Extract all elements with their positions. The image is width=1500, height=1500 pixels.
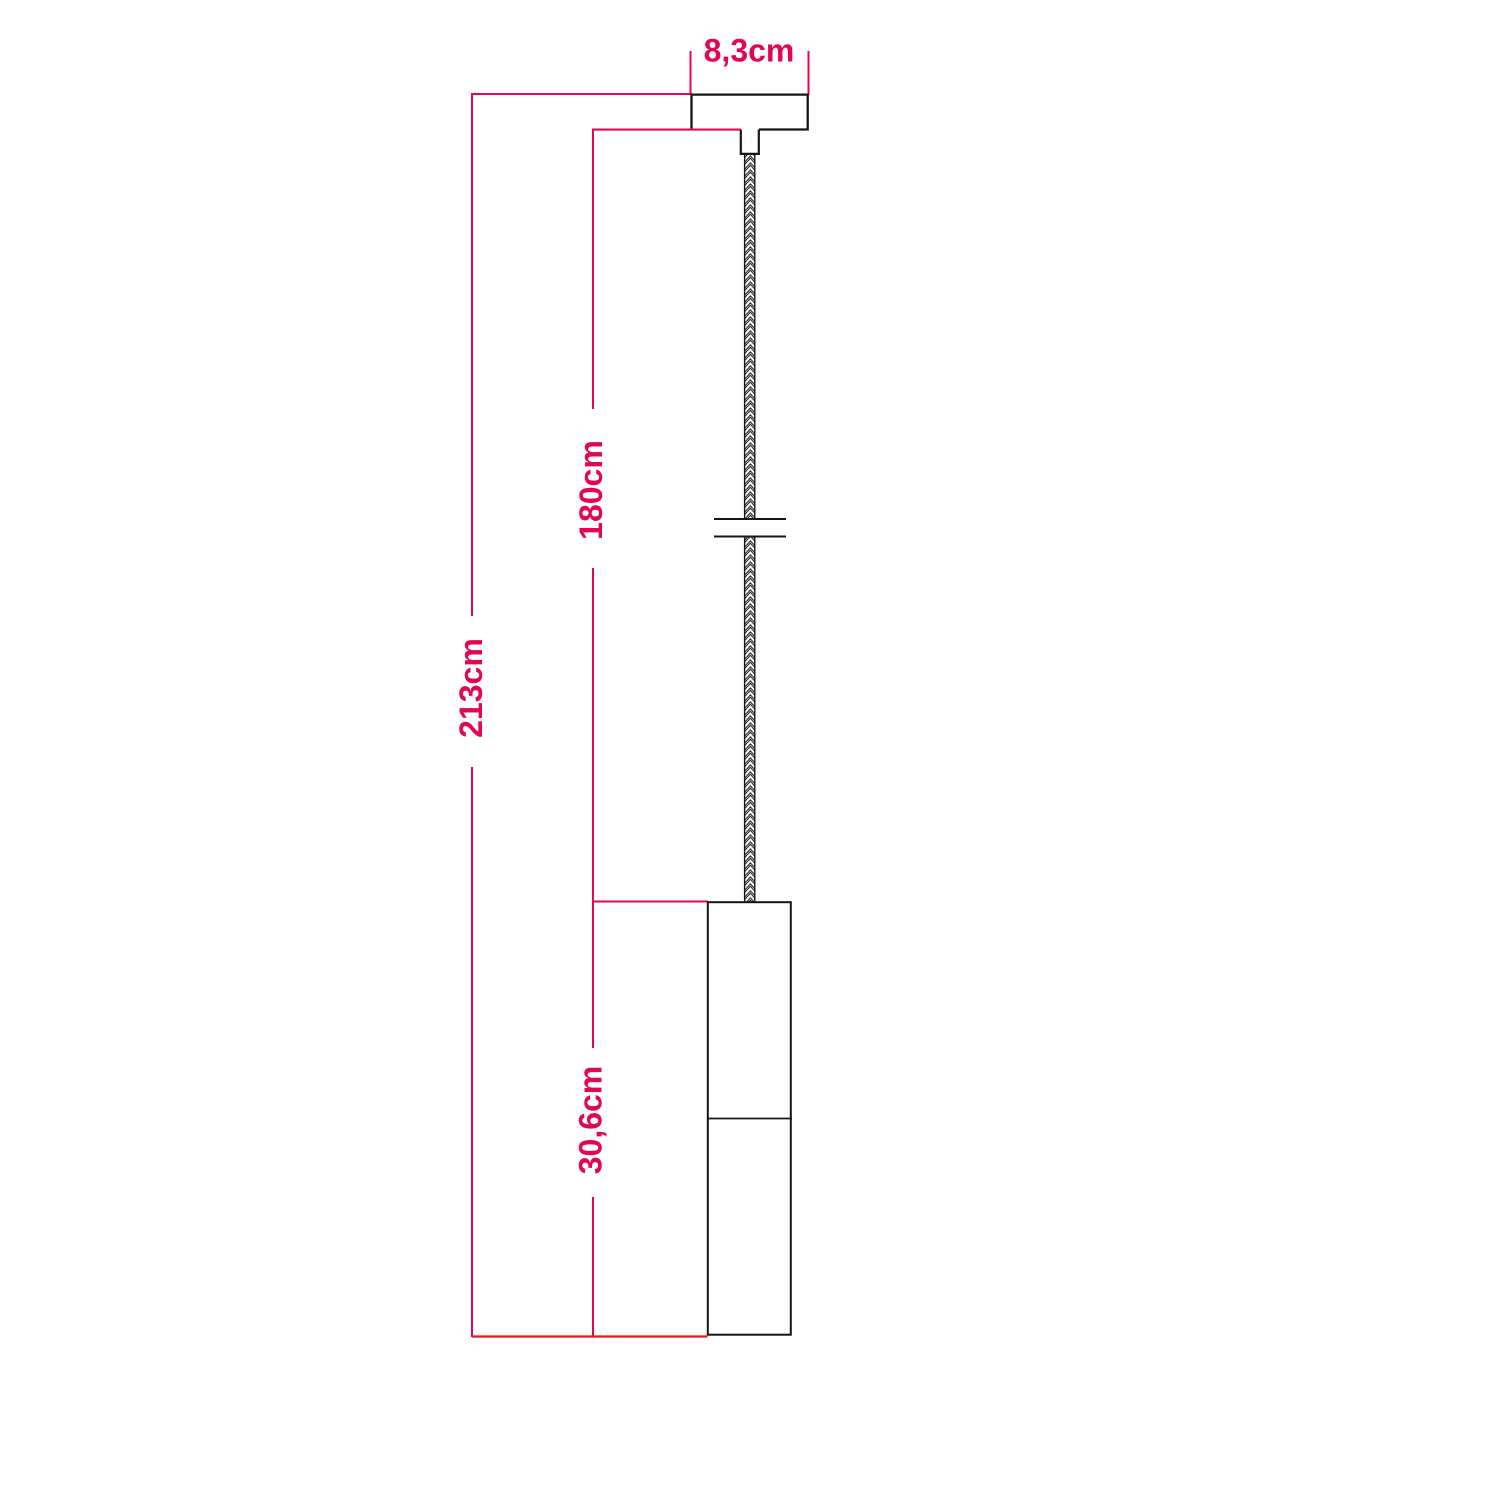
svg-text:30,6cm: 30,6cm [573,1066,609,1175]
svg-text:180cm: 180cm [573,440,609,540]
svg-text:8,3cm: 8,3cm [704,33,795,69]
svg-text:213cm: 213cm [453,638,489,738]
